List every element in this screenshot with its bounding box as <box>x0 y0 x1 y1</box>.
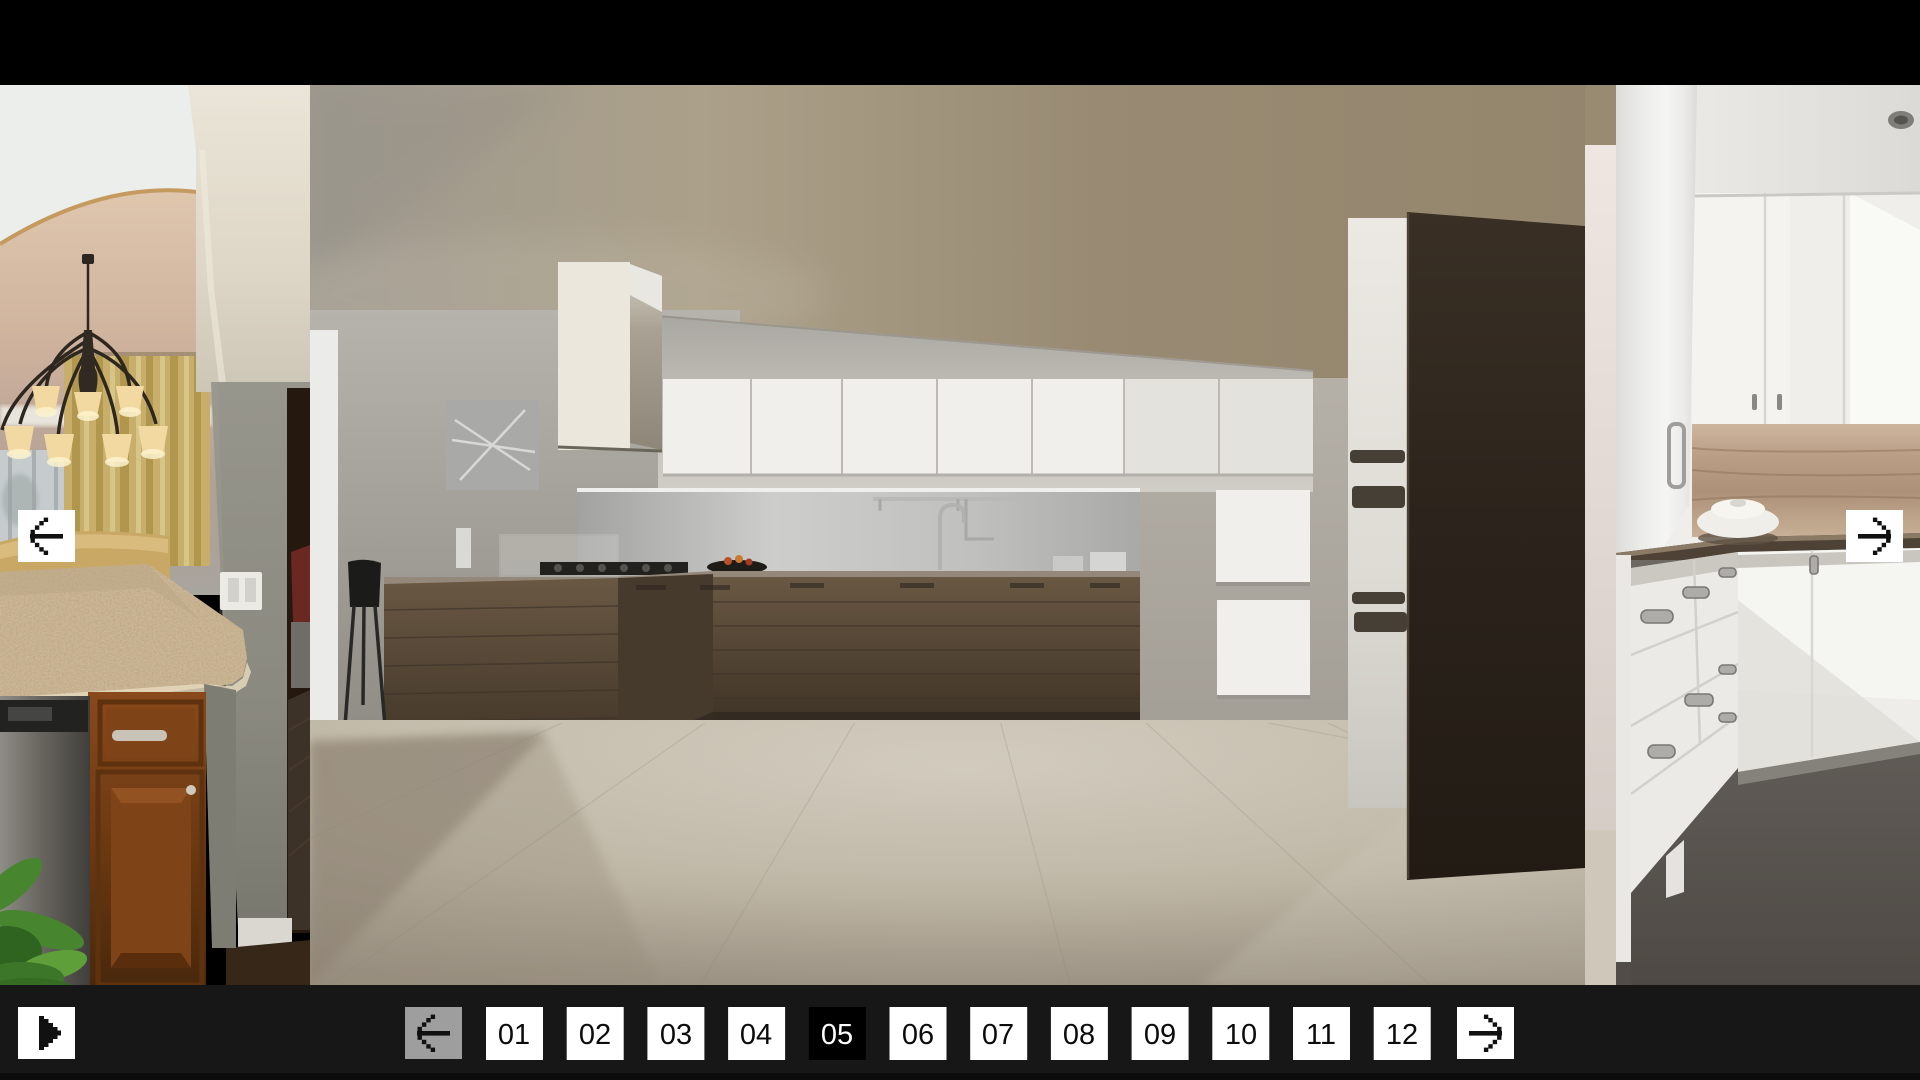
svg-text:08: 08 <box>1063 1019 1095 1051</box>
svg-text:11: 11 <box>1306 1019 1336 1051</box>
svg-text:03: 03 <box>660 1019 692 1051</box>
svg-text:07: 07 <box>982 1019 1014 1051</box>
svg-text:02: 02 <box>579 1019 611 1051</box>
svg-text:05: 05 <box>821 1019 853 1051</box>
svg-text:01: 01 <box>498 1019 530 1051</box>
svg-text:09: 09 <box>1144 1019 1176 1051</box>
svg-text:04: 04 <box>740 1019 772 1051</box>
svg-text:06: 06 <box>902 1019 934 1051</box>
svg-text:12: 12 <box>1386 1019 1418 1051</box>
svg-text:10: 10 <box>1225 1019 1257 1051</box>
